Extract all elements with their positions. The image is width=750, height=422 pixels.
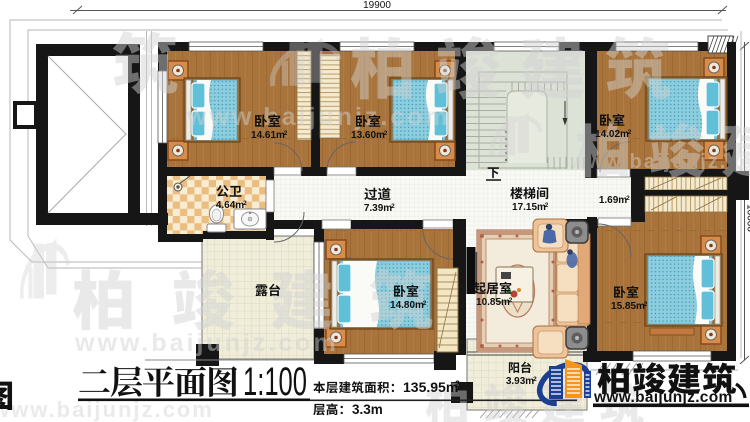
svg-text:3.93m: 3.93m <box>506 376 534 387</box>
svg-text:4.64m: 4.64m <box>216 200 244 211</box>
svg-text:2: 2 <box>423 300 427 307</box>
svg-text:2: 2 <box>243 200 247 207</box>
svg-text:2: 2 <box>533 376 537 383</box>
svg-text:14.80m: 14.80m <box>390 300 424 311</box>
svg-text:19900: 19900 <box>363 0 391 11</box>
svg-text:2: 2 <box>626 195 630 202</box>
svg-text:17.15m: 17.15m <box>512 202 546 213</box>
svg-text:3.3m: 3.3m <box>352 402 383 417</box>
svg-text:7.39m: 7.39m <box>364 203 392 214</box>
svg-text:2: 2 <box>391 203 395 210</box>
svg-text:www.baijunjz.com: www.baijunjz.com <box>569 151 750 173</box>
svg-text:2: 2 <box>284 130 288 137</box>
svg-text:2: 2 <box>644 301 648 308</box>
svg-text:14.02m: 14.02m <box>595 129 629 140</box>
svg-text:10.85m: 10.85m <box>476 297 510 308</box>
svg-text:2: 2 <box>628 129 632 136</box>
svg-text:www.baijunjz.com: www.baijunjz.com <box>593 389 733 406</box>
svg-text:2: 2 <box>545 202 549 209</box>
svg-text:2: 2 <box>455 379 460 389</box>
svg-text:2: 2 <box>509 297 513 304</box>
svg-text:135.95m: 135.95m <box>403 379 458 395</box>
svg-text:2: 2 <box>384 130 388 137</box>
svg-text:www.baijunjz.com: www.baijunjz.com <box>74 329 339 357</box>
svg-text:www.baijunjz.com: www.baijunjz.com <box>186 103 451 131</box>
svg-text:14.61m: 14.61m <box>251 130 285 141</box>
svg-text:13.60m: 13.60m <box>351 130 385 141</box>
svg-text:1:100: 1:100 <box>243 360 307 404</box>
svg-text:10000: 10000 <box>745 204 750 232</box>
svg-text:1.69m: 1.69m <box>599 195 627 206</box>
svg-text:15.85m: 15.85m <box>611 301 645 312</box>
